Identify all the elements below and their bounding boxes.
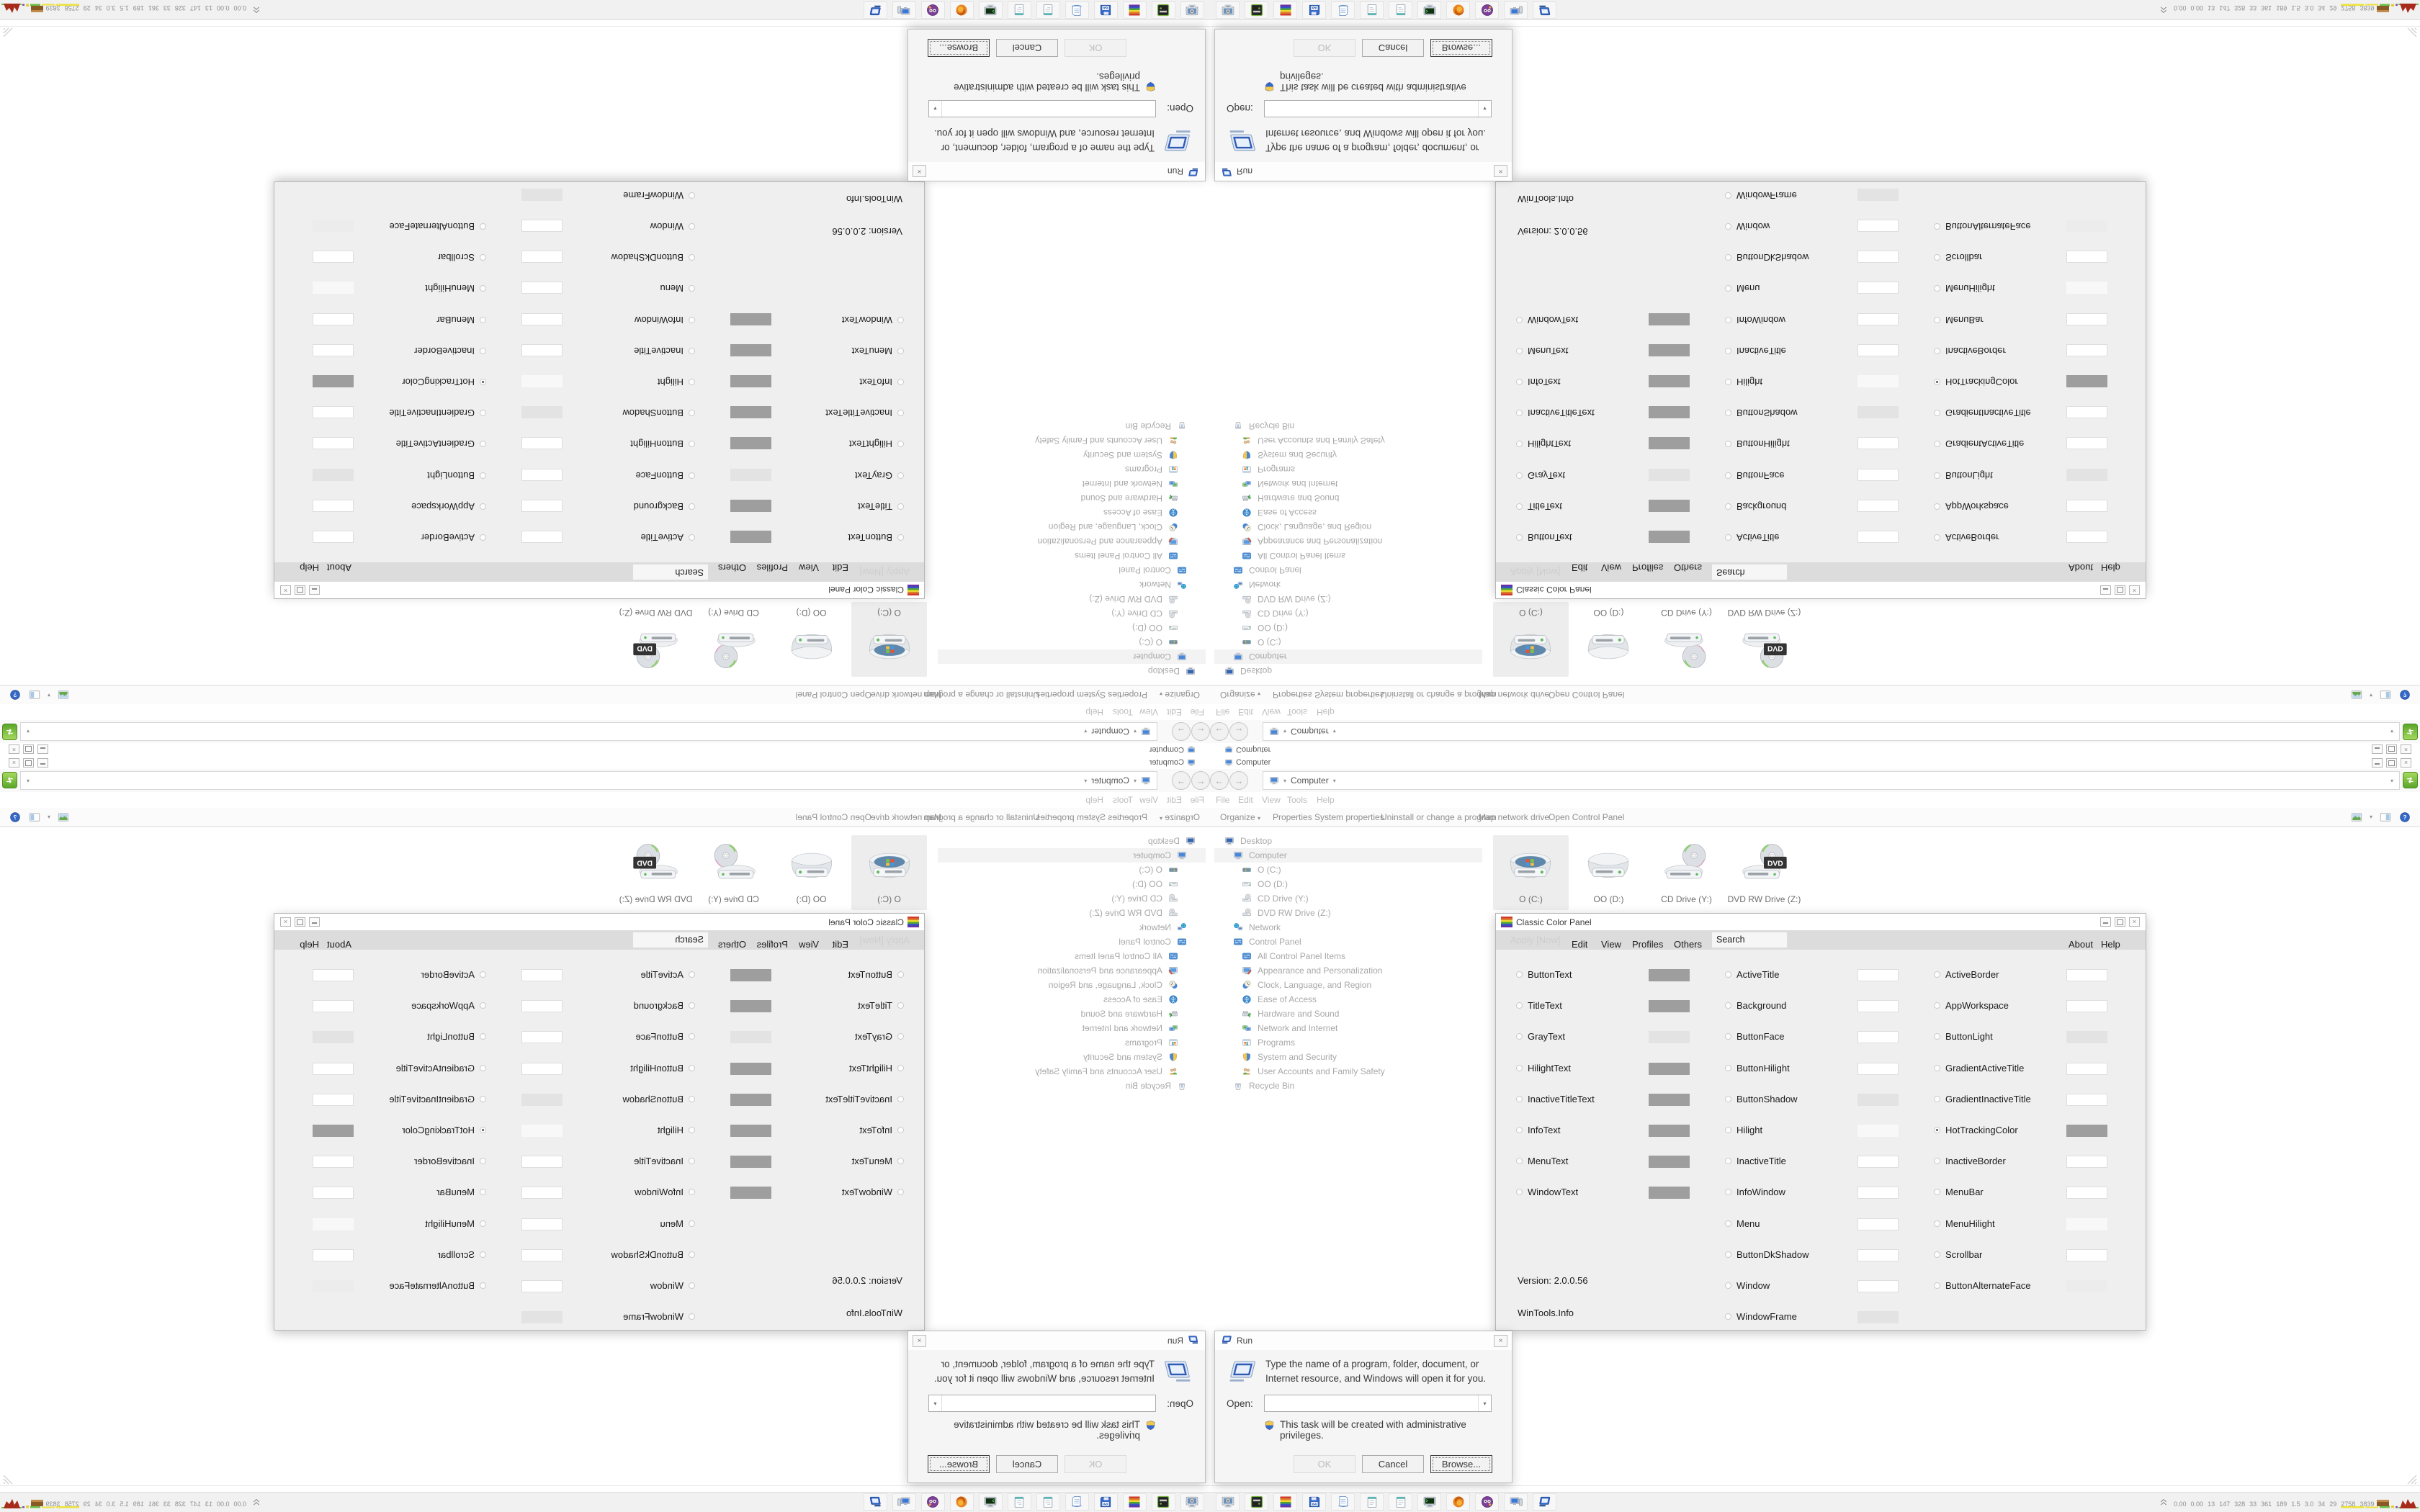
radio-windowframe[interactable] <box>689 1313 695 1320</box>
color-swatch-buttonlight[interactable] <box>2066 1031 2107 1043</box>
address-bar[interactable]: ▾ Computer ▾ ▾ <box>1263 771 2400 790</box>
tree-item-desktop[interactable]: Desktop <box>1214 834 1482 848</box>
tree-item-network-and-internet[interactable]: Network and Internet <box>1214 477 1482 491</box>
color-swatch-buttonlight[interactable] <box>2066 469 2107 481</box>
site-link[interactable]: WinTools.Info <box>1518 1308 1574 1318</box>
forward-button[interactable]: → <box>1229 722 1248 741</box>
color-swatch-gradientinactivetitle[interactable] <box>2066 406 2107 418</box>
preview-pane-icon[interactable] <box>28 690 41 701</box>
taskbar-app-remote-desktop[interactable] <box>892 1493 916 1511</box>
radio-inactiveborder[interactable] <box>1934 348 1940 354</box>
taskbar-app-firefox[interactable] <box>950 1493 974 1511</box>
apply-now-button[interactable]: Apply [Now] <box>1510 567 1560 577</box>
show-hidden-icons-chevron[interactable] <box>2159 6 2168 14</box>
taskbar-app-run-app[interactable] <box>1533 1 1556 19</box>
open-input[interactable] <box>1265 1395 1478 1413</box>
tree-item-programs[interactable]: Programs <box>938 462 1206 477</box>
ccp-titlebar[interactable]: Classic Color Panel × <box>274 914 924 930</box>
color-swatch-windowframe[interactable] <box>521 1311 563 1323</box>
help-icon[interactable]: ? <box>2398 690 2411 701</box>
tree-item-o-c-[interactable]: O (C:) <box>938 635 1206 649</box>
back-button[interactable]: ← <box>1210 722 1229 741</box>
taskbar-app-run-app[interactable] <box>1533 1493 1556 1511</box>
tree-item-hardware-and-sound[interactable]: Hardware and Sound <box>938 1007 1206 1021</box>
color-swatch-gradientactivetitle[interactable] <box>313 1063 354 1075</box>
apply-now-button[interactable]: Apply [Now] <box>860 567 910 577</box>
menu-item-tools[interactable]: Tools <box>1287 707 1307 717</box>
tree-item-clock-language-and-region[interactable]: Clock, Language, and Region <box>1214 978 1482 992</box>
browse-button[interactable]: Browse... <box>1430 1455 1492 1473</box>
menu-item-view[interactable]: View <box>1262 795 1281 805</box>
back-button[interactable]: ← <box>1191 771 1210 790</box>
maximize-button[interactable] <box>295 917 305 927</box>
taskbar-app-display-settings[interactable] <box>1216 1 1240 19</box>
minimize-button[interactable] <box>2372 758 2383 768</box>
forward-button[interactable]: → <box>1172 771 1191 790</box>
ccp-menu-profiles[interactable]: Profiles <box>1632 562 1663 573</box>
color-swatch-gradientactivetitle[interactable] <box>2066 1063 2107 1075</box>
views-icon[interactable] <box>2350 690 2363 701</box>
chevron-down-icon[interactable]: ▾ <box>1333 778 1336 784</box>
color-swatch-menubar[interactable] <box>2066 1187 2107 1199</box>
taskbar-app-console[interactable] <box>1417 1493 1441 1511</box>
tree-item-ease-of-access[interactable]: Ease of Access <box>1214 992 1482 1007</box>
run-titlebar[interactable]: Run × <box>908 1331 1205 1350</box>
taskbar-app-purple-media[interactable] <box>1475 1 1499 19</box>
color-swatch-buttonalternateface[interactable] <box>313 220 354 232</box>
ccp-menu-profiles[interactable]: Profiles <box>1632 939 1663 950</box>
tree-item-desktop[interactable]: Desktop <box>938 834 1206 848</box>
tree-item-appearance-and-personalization[interactable]: Appearance and Personalization <box>1214 963 1482 978</box>
tree-item-network[interactable]: Network <box>1214 920 1482 935</box>
color-swatch-activeborder[interactable] <box>313 531 354 543</box>
radio-menuhilight[interactable] <box>480 1220 486 1227</box>
minimize-button[interactable] <box>37 758 48 768</box>
ccp-menu-view[interactable]: View <box>799 562 819 573</box>
menu-item-file[interactable]: File <box>1191 795 1204 805</box>
resize-grip-icon[interactable] <box>2406 1473 2417 1485</box>
tree-item-all-control-panel-items[interactable]: All Control Panel Items <box>938 949 1206 963</box>
close-icon[interactable]: × <box>913 1335 926 1347</box>
refresh-go-button[interactable] <box>2403 772 2418 788</box>
ccp-menu-about[interactable]: About <box>2069 562 2093 573</box>
run-titlebar[interactable]: Run × <box>1215 162 1512 181</box>
toolbar-item-open-control-panel[interactable]: Open Control Panel <box>1549 812 1624 822</box>
tree-item-cd-drive-y-[interactable]: CD Drive (Y:) <box>1214 891 1482 906</box>
toolbar-item-map-network-drive[interactable]: Map network drive <box>871 690 941 700</box>
tree-item-ease-of-access[interactable]: Ease of Access <box>938 992 1206 1007</box>
tree-item-hardware-and-sound[interactable]: Hardware and Sound <box>1214 491 1482 505</box>
taskbar-app-notepad[interactable] <box>1389 1 1412 19</box>
tree-item-appearance-and-personalization[interactable]: Appearance and Personalization <box>938 534 1206 549</box>
radio-hottrackingcolor[interactable] <box>480 379 486 385</box>
radio-gradientinactivetitle[interactable] <box>1934 410 1940 416</box>
color-swatch-hottrackingcolor[interactable] <box>313 1125 354 1137</box>
radio-appworkspace[interactable] <box>1934 503 1940 510</box>
tree-item-control-panel[interactable]: Control Panel <box>1214 563 1482 577</box>
tree-item-clock-language-and-region[interactable]: Clock, Language, and Region <box>938 978 1206 992</box>
tree-item-desktop[interactable]: Desktop <box>938 664 1206 678</box>
taskbar-app-save-64[interactable]: 64 <box>1094 1493 1118 1511</box>
explorer-titlebar[interactable]: Computer × <box>1210 756 2420 769</box>
taskbar-app-notepad[interactable] <box>1360 1493 1384 1511</box>
toolbar-item-system-properties[interactable]: System properties <box>1314 690 1384 700</box>
taskbar-app-disk-utility[interactable] <box>1152 1493 1175 1511</box>
radio-hottrackingcolor[interactable] <box>480 1127 486 1133</box>
radio-hottrackingcolor[interactable] <box>1934 1127 1940 1133</box>
tree-item-user-accounts-and-family-safety[interactable]: User Accounts and Family Safety <box>938 433 1206 448</box>
radio-activeborder[interactable] <box>1934 534 1940 541</box>
minimize-button[interactable] <box>309 917 320 927</box>
drive-item-cd-drive-y-[interactable]: CD Drive (Y:) <box>696 835 771 910</box>
tree-item-appearance-and-personalization[interactable]: Appearance and Personalization <box>1214 534 1482 549</box>
ccp-menu-help[interactable]: Help <box>2101 939 2120 950</box>
drive-item-oo-d-[interactable]: OO (D:) <box>774 602 849 677</box>
taskbar-app-notepad[interactable] <box>1008 1493 1031 1511</box>
tree-item-desktop[interactable]: Desktop <box>1214 664 1482 678</box>
views-dropdown-icon[interactable]: ▾ <box>48 814 50 820</box>
toolbar-item-system-properties[interactable]: System properties <box>1314 812 1384 822</box>
minimize-button[interactable] <box>309 585 320 595</box>
tree-item-network-and-internet[interactable]: Network and Internet <box>938 477 1206 491</box>
toolbar-item-system-properties[interactable]: System properties <box>1036 812 1106 822</box>
breadcrumb[interactable]: Computer <box>1291 775 1329 786</box>
radio-buttonlight[interactable] <box>480 1033 486 1040</box>
address-history-icon[interactable]: ▾ <box>2390 729 2393 735</box>
help-icon[interactable]: ? <box>9 690 22 701</box>
close-button[interactable]: × <box>2129 585 2140 595</box>
color-swatch-activeborder[interactable] <box>2066 531 2107 543</box>
menu-item-help[interactable]: Help <box>1085 707 1103 717</box>
menu-item-edit[interactable]: Edit <box>1238 707 1253 717</box>
show-hidden-icons-chevron[interactable] <box>252 6 261 14</box>
apply-now-button[interactable]: Apply [Now] <box>1510 935 1560 945</box>
color-swatch-gradientinactivetitle[interactable] <box>2066 1094 2107 1106</box>
color-swatch-menuhilight[interactable] <box>2066 1218 2107 1230</box>
search-input[interactable]: Search <box>1712 564 1787 580</box>
address-history-icon[interactable]: ▾ <box>27 778 30 784</box>
site-link[interactable]: WinTools.Info <box>1518 194 1574 204</box>
views-dropdown-icon[interactable]: ▾ <box>48 693 50 699</box>
tree-item-recycle-bin[interactable]: Recycle Bin <box>1214 1079 1482 1093</box>
radio-inactiveborder[interactable] <box>480 1158 486 1164</box>
radio-buttonlight[interactable] <box>1934 472 1940 479</box>
open-combobox[interactable]: ▾ <box>1264 1395 1492 1412</box>
tree-item-network-and-internet[interactable]: Network and Internet <box>1214 1021 1482 1035</box>
taskbar-app-console[interactable] <box>979 1493 1003 1511</box>
menu-item-help[interactable]: Help <box>1317 795 1335 805</box>
taskbar-app-console[interactable] <box>979 1 1003 19</box>
browse-button[interactable]: Browse... <box>1430 39 1492 57</box>
tree-item-system-and-security[interactable]: System and Security <box>938 448 1206 462</box>
organize-button[interactable]: Organize ▾ <box>1160 812 1200 822</box>
taskbar-app-notepad[interactable] <box>1036 1 1060 19</box>
tree-item-recycle-bin[interactable]: Recycle Bin <box>938 419 1206 433</box>
refresh-go-button[interactable] <box>2 724 17 740</box>
breadcrumb[interactable]: Computer <box>1091 775 1129 786</box>
color-swatch-buttonlight[interactable] <box>313 469 354 481</box>
help-icon[interactable]: ? <box>2398 811 2411 822</box>
restore-button[interactable] <box>2386 758 2397 768</box>
radio-inactiveborder[interactable] <box>480 348 486 354</box>
address-bar[interactable]: ▾ Computer ▾ ▾ <box>20 771 1157 790</box>
ccp-menu-profiles[interactable]: Profiles <box>757 939 788 950</box>
taskbar-app-firefox[interactable] <box>1446 1493 1470 1511</box>
apply-now-button[interactable]: Apply [Now] <box>860 935 910 945</box>
maximize-button[interactable] <box>2115 585 2125 595</box>
restore-button[interactable] <box>23 744 34 754</box>
taskbar-app-display-settings[interactable] <box>1180 1 1204 19</box>
toolbar-item-open-control-panel[interactable]: Open Control Panel <box>1549 690 1624 700</box>
close-button[interactable]: × <box>2401 744 2411 754</box>
site-link[interactable]: WinTools.Info <box>846 1308 902 1318</box>
ok-button[interactable]: OK <box>1294 1455 1355 1473</box>
ccp-menu-others[interactable]: Others <box>718 562 746 573</box>
ccp-menu-about[interactable]: About <box>327 939 351 950</box>
color-swatch-gradientactivetitle[interactable] <box>2066 437 2107 449</box>
drive-item-dvd-rw-drive-z-[interactable]: DVDDVD RW Drive (Z:) <box>618 602 694 677</box>
preview-pane-icon[interactable] <box>2379 690 2392 701</box>
run-titlebar[interactable]: Run × <box>1215 1331 1512 1350</box>
refresh-go-button[interactable] <box>2 772 17 788</box>
taskbar-app-remote-desktop[interactable] <box>892 1 916 19</box>
organize-button[interactable]: Organize ▾ <box>1220 812 1260 822</box>
address-history-icon[interactable]: ▾ <box>2390 778 2393 784</box>
radio-buttonalternateface[interactable] <box>480 223 486 230</box>
ccp-menu-about[interactable]: About <box>2069 939 2093 950</box>
tree-item-cd-drive-y-[interactable]: CD Drive (Y:) <box>1214 606 1482 621</box>
minimize-button[interactable] <box>37 744 48 754</box>
combo-dropdown-icon[interactable]: ▾ <box>1478 101 1491 117</box>
tree-item-network-and-internet[interactable]: Network and Internet <box>938 1021 1206 1035</box>
taskbar-app-disk-utility[interactable] <box>1245 1 1268 19</box>
views-icon[interactable] <box>57 690 70 701</box>
tree-item-system-and-security[interactable]: System and Security <box>938 1050 1206 1064</box>
show-hidden-icons-chevron[interactable] <box>252 1498 261 1506</box>
breadcrumb[interactable]: Computer <box>1291 726 1329 737</box>
ccp-menu-about[interactable]: About <box>327 562 351 573</box>
minimize-button[interactable] <box>2372 744 2383 754</box>
tree-item-computer[interactable]: Computer <box>1214 848 1482 863</box>
taskbar-app-save-64[interactable]: 64 <box>1302 1 1326 19</box>
ccp-menu-view[interactable]: View <box>1601 562 1621 573</box>
radio-gradientactivetitle[interactable] <box>480 441 486 447</box>
taskbar-app-purple-media[interactable] <box>1475 1493 1499 1511</box>
tree-item-clock-language-and-region[interactable]: Clock, Language, and Region <box>938 520 1206 534</box>
tree-item-system-and-security[interactable]: System and Security <box>1214 448 1482 462</box>
tree-item-programs[interactable]: Programs <box>1214 462 1482 477</box>
radio-menuhilight[interactable] <box>1934 285 1940 292</box>
menu-item-help[interactable]: Help <box>1085 795 1103 805</box>
taskbar-app-disk-utility[interactable] <box>1245 1493 1268 1511</box>
color-swatch-inactiveborder[interactable] <box>2066 344 2107 356</box>
taskbar-app-purple-media[interactable] <box>921 1 945 19</box>
tree-item-oo-d-[interactable]: OO (D:) <box>1214 877 1482 891</box>
radio-gradientinactivetitle[interactable] <box>480 1096 486 1102</box>
tree-item-ease-of-access[interactable]: Ease of Access <box>1214 505 1482 520</box>
drive-item-cd-drive-y-[interactable]: CD Drive (Y:) <box>1649 835 1724 910</box>
chevron-down-icon[interactable]: ▾ <box>1084 729 1087 735</box>
tree-item-system-and-security[interactable]: System and Security <box>1214 1050 1482 1064</box>
tree-item-dvd-rw-drive-z-[interactable]: DVD RW Drive (Z:) <box>938 592 1206 606</box>
radio-appworkspace[interactable] <box>480 1002 486 1009</box>
drive-item-cd-drive-y-[interactable]: CD Drive (Y:) <box>696 602 771 677</box>
taskbar-app-classic-color-panel[interactable] <box>1123 1 1147 19</box>
taskbar-app-firefox[interactable] <box>1446 1 1470 19</box>
minimize-button[interactable] <box>2100 585 2111 595</box>
color-swatch-windowframe[interactable] <box>1857 189 1899 201</box>
color-swatch-activeborder[interactable] <box>313 969 354 981</box>
color-swatch-scrollbar[interactable] <box>313 251 354 263</box>
taskbar-app-classic-color-panel[interactable] <box>1273 1493 1297 1511</box>
menu-item-view[interactable]: View <box>1139 707 1158 717</box>
drive-item-cd-drive-y-[interactable]: CD Drive (Y:) <box>1649 602 1724 677</box>
ccp-menu-edit[interactable]: Edit <box>1572 939 1587 950</box>
ccp-menu-view[interactable]: View <box>799 939 819 950</box>
ccp-titlebar[interactable]: Classic Color Panel × <box>1496 914 2146 930</box>
chevron-down-icon[interactable]: ▾ <box>1333 729 1336 735</box>
color-swatch-buttonlight[interactable] <box>313 1031 354 1043</box>
open-input[interactable] <box>942 99 1155 117</box>
taskbar-app-classic-color-panel[interactable] <box>1123 1493 1147 1511</box>
radio-windowframe[interactable] <box>1725 192 1731 199</box>
close-button[interactable]: × <box>2401 758 2411 768</box>
tree-item-user-accounts-and-family-safety[interactable]: User Accounts and Family Safety <box>1214 433 1482 448</box>
tree-item-all-control-panel-items[interactable]: All Control Panel Items <box>938 549 1206 563</box>
combo-dropdown-icon[interactable]: ▾ <box>929 1395 942 1411</box>
views-icon[interactable] <box>2350 811 2363 822</box>
ccp-menu-edit[interactable]: Edit <box>833 562 848 573</box>
browse-button[interactable]: Browse... <box>928 39 990 57</box>
radio-scrollbar[interactable] <box>1934 254 1940 261</box>
ccp-menu-help[interactable]: Help <box>2101 562 2120 573</box>
drive-item-oo-d-[interactable]: OO (D:) <box>1571 835 1646 910</box>
resize-grip-icon[interactable] <box>3 1473 14 1485</box>
toolbar-item-properties[interactable]: Properties <box>1108 690 1147 700</box>
views-icon[interactable] <box>57 811 70 822</box>
drive-item-oo-d-[interactable]: OO (D:) <box>1571 602 1646 677</box>
drive-item-oo-d-[interactable]: OO (D:) <box>774 835 849 910</box>
close-icon[interactable]: × <box>913 165 926 177</box>
tree-item-oo-d-[interactable]: OO (D:) <box>1214 621 1482 635</box>
radio-menubar[interactable] <box>480 1189 486 1195</box>
radio-menubar[interactable] <box>480 317 486 323</box>
taskbar-app-purple-media[interactable] <box>921 1493 945 1511</box>
tree-item-network[interactable]: Network <box>938 577 1206 592</box>
open-combobox[interactable]: ▾ <box>928 1395 1156 1412</box>
ccp-menu-others[interactable]: Others <box>1674 939 1702 950</box>
toolbar-item-map-network-drive[interactable]: Map network drive <box>1479 690 1549 700</box>
tree-item-o-c-[interactable]: O (C:) <box>1214 863 1482 877</box>
tree-item-computer[interactable]: Computer <box>938 848 1206 863</box>
tree-item-dvd-rw-drive-z-[interactable]: DVD RW Drive (Z:) <box>1214 906 1482 920</box>
radio-menuhilight[interactable] <box>480 285 486 292</box>
tree-item-control-panel[interactable]: Control Panel <box>938 563 1206 577</box>
ccp-menu-help[interactable]: Help <box>300 939 319 950</box>
tree-item-oo-d-[interactable]: OO (D:) <box>938 877 1206 891</box>
combo-dropdown-icon[interactable]: ▾ <box>929 101 942 117</box>
minimize-button[interactable] <box>2100 917 2111 927</box>
menu-item-tools[interactable]: Tools <box>1113 795 1133 805</box>
radio-gradientactivetitle[interactable] <box>480 1065 486 1071</box>
chevron-down-icon[interactable]: ▾ <box>1134 729 1137 735</box>
close-button[interactable]: × <box>280 585 291 595</box>
taskbar-app-save-64[interactable]: 64 <box>1094 1 1118 19</box>
color-swatch-buttonalternateface[interactable] <box>2066 220 2107 232</box>
color-swatch-appworkspace[interactable] <box>313 1000 354 1012</box>
tree-item-hardware-and-sound[interactable]: Hardware and Sound <box>938 491 1206 505</box>
preview-pane-icon[interactable] <box>2379 811 2392 822</box>
ok-button[interactable]: OK <box>1065 1455 1126 1473</box>
breadcrumb[interactable]: Computer <box>1091 726 1129 737</box>
drive-item-o-c-[interactable]: O (C:) <box>1493 835 1569 910</box>
combo-dropdown-icon[interactable]: ▾ <box>1478 1395 1491 1411</box>
tree-item-oo-d-[interactable]: OO (D:) <box>938 621 1206 635</box>
tree-item-clock-language-and-region[interactable]: Clock, Language, and Region <box>1214 520 1482 534</box>
tree-item-user-accounts-and-family-safety[interactable]: User Accounts and Family Safety <box>1214 1064 1482 1079</box>
refresh-go-button[interactable] <box>2403 724 2418 740</box>
toolbar-item-properties[interactable]: Properties <box>1273 812 1312 822</box>
resize-grip-icon[interactable] <box>2406 27 2417 39</box>
color-swatch-scrollbar[interactable] <box>313 1249 354 1261</box>
ok-button[interactable]: OK <box>1294 39 1355 57</box>
tree-item-o-c-[interactable]: O (C:) <box>1214 635 1482 649</box>
chevron-down-icon[interactable]: ▾ <box>1084 778 1087 784</box>
taskbar-app-display-settings[interactable] <box>1180 1493 1204 1511</box>
color-swatch-windowframe[interactable] <box>521 189 563 201</box>
open-combobox[interactable]: ▾ <box>1264 100 1492 117</box>
taskbar-app-printer-doc[interactable] <box>1065 1493 1089 1511</box>
ccp-titlebar[interactable]: Classic Color Panel × <box>1496 582 2146 598</box>
toolbar-item-open-control-panel[interactable]: Open Control Panel <box>796 690 871 700</box>
menu-item-file[interactable]: File <box>1216 795 1229 805</box>
taskbar-app-disk-utility[interactable] <box>1152 1 1175 19</box>
color-swatch-hottrackingcolor[interactable] <box>2066 375 2107 387</box>
ccp-menu-edit[interactable]: Edit <box>833 939 848 950</box>
drive-item-o-c-[interactable]: O (C:) <box>851 835 927 910</box>
tree-item-dvd-rw-drive-z-[interactable]: DVD RW Drive (Z:) <box>938 906 1206 920</box>
organize-button[interactable]: Organize ▾ <box>1220 690 1260 700</box>
color-swatch-menubar[interactable] <box>313 1187 354 1199</box>
radio-inactiveborder[interactable] <box>1934 1158 1940 1164</box>
tree-item-cd-drive-y-[interactable]: CD Drive (Y:) <box>938 606 1206 621</box>
address-bar[interactable]: ▾ Computer ▾ ▾ <box>20 722 1157 741</box>
ccp-titlebar[interactable]: Classic Color Panel × <box>274 582 924 598</box>
search-input[interactable]: Search <box>1712 932 1787 948</box>
tree-item-control-panel[interactable]: Control Panel <box>938 935 1206 949</box>
menu-item-view[interactable]: View <box>1262 707 1281 717</box>
close-button[interactable]: × <box>280 917 291 927</box>
toolbar-item-open-control-panel[interactable]: Open Control Panel <box>796 812 871 822</box>
tree-item-user-accounts-and-family-safety[interactable]: User Accounts and Family Safety <box>938 1064 1206 1079</box>
explorer-titlebar[interactable]: Computer × <box>0 756 1210 769</box>
taskbar-app-remote-desktop[interactable] <box>1504 1 1528 19</box>
color-swatch-gradientactivetitle[interactable] <box>313 437 354 449</box>
forward-button[interactable]: → <box>1229 771 1248 790</box>
close-button[interactable]: × <box>9 744 19 754</box>
taskbar-app-save-64[interactable]: 64 <box>1302 1493 1326 1511</box>
color-swatch-menuhilight[interactable] <box>313 282 354 294</box>
drive-item-dvd-rw-drive-z-[interactable]: DVDDVD RW Drive (Z:) <box>1726 835 1802 910</box>
menu-item-file[interactable]: File <box>1216 707 1229 717</box>
cancel-button[interactable]: Cancel <box>996 39 1058 57</box>
show-hidden-icons-chevron[interactable] <box>2159 1498 2168 1506</box>
toolbar-item-map-network-drive[interactable]: Map network drive <box>871 812 941 822</box>
drive-item-dvd-rw-drive-z-[interactable]: DVDDVD RW Drive (Z:) <box>1726 602 1802 677</box>
menu-item-edit[interactable]: Edit <box>1238 795 1253 805</box>
maximize-button[interactable] <box>2115 917 2125 927</box>
resize-grip-icon[interactable] <box>3 27 14 39</box>
